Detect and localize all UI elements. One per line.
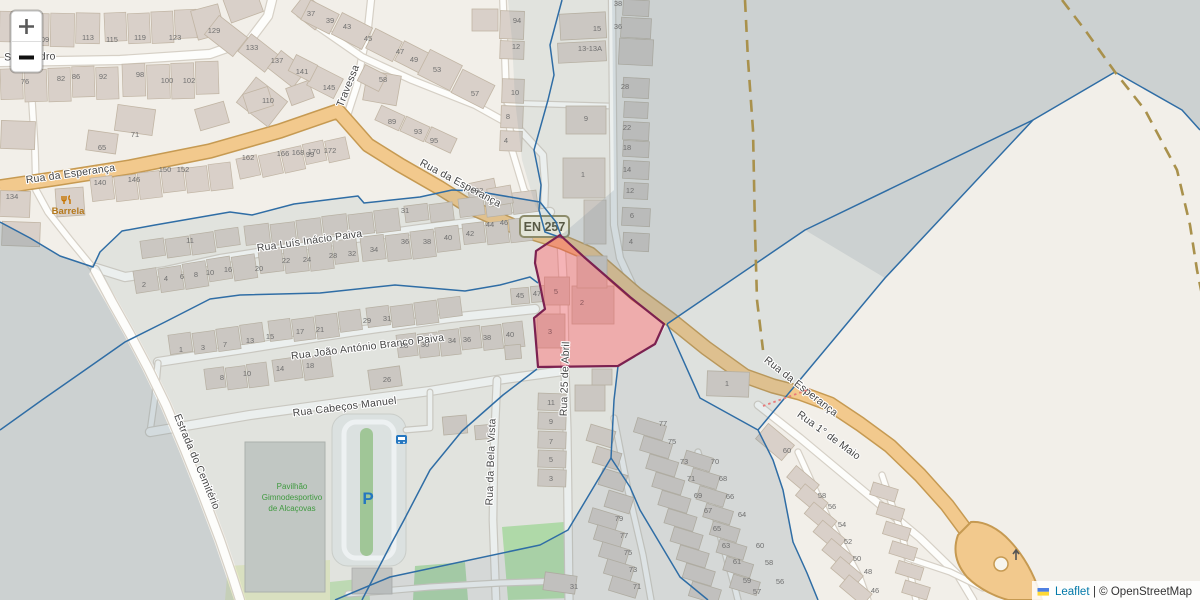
svg-text:4: 4 xyxy=(629,237,633,246)
svg-text:13: 13 xyxy=(246,336,254,345)
svg-text:3: 3 xyxy=(549,474,553,483)
svg-text:4: 4 xyxy=(504,136,508,145)
svg-text:28: 28 xyxy=(621,82,629,91)
svg-text:5: 5 xyxy=(554,287,558,296)
svg-text:63: 63 xyxy=(722,541,730,550)
svg-text:65: 65 xyxy=(98,143,106,152)
svg-text:4: 4 xyxy=(164,274,168,283)
svg-text:64: 64 xyxy=(738,510,746,519)
svg-text:9: 9 xyxy=(549,417,553,426)
svg-text:46: 46 xyxy=(871,586,879,595)
svg-text:11: 11 xyxy=(186,236,194,245)
svg-text:10: 10 xyxy=(511,88,519,97)
svg-text:Leaflet: Leaflet xyxy=(1055,586,1090,598)
svg-text:5: 5 xyxy=(549,455,553,464)
svg-text:60: 60 xyxy=(783,446,791,455)
svg-text:50: 50 xyxy=(853,554,861,563)
svg-text:3: 3 xyxy=(548,327,552,336)
svg-text:Pavilhão: Pavilhão xyxy=(277,482,308,491)
svg-text:18: 18 xyxy=(623,143,631,152)
svg-text:60: 60 xyxy=(756,541,764,550)
svg-text:34: 34 xyxy=(370,245,378,254)
svg-text:57: 57 xyxy=(471,89,479,98)
svg-text:45: 45 xyxy=(516,291,524,300)
svg-text:31: 31 xyxy=(401,206,409,215)
svg-text:56: 56 xyxy=(828,502,836,511)
svg-text:113: 113 xyxy=(82,33,94,42)
svg-text:65: 65 xyxy=(713,524,721,533)
svg-text:54: 54 xyxy=(838,520,846,529)
svg-text:13-13A: 13-13A xyxy=(578,44,602,53)
svg-text:36: 36 xyxy=(614,22,622,31)
svg-text:6: 6 xyxy=(630,211,634,220)
svg-text:98: 98 xyxy=(136,70,144,79)
svg-text:31: 31 xyxy=(383,314,391,323)
svg-text:99: 99 xyxy=(306,150,314,159)
svg-text:26: 26 xyxy=(383,375,391,384)
svg-text:92: 92 xyxy=(99,72,107,81)
svg-text:7: 7 xyxy=(223,340,227,349)
svg-text:58: 58 xyxy=(379,75,387,84)
svg-text:58: 58 xyxy=(765,558,773,567)
svg-text:38: 38 xyxy=(483,333,491,342)
svg-text:129: 129 xyxy=(208,26,221,35)
svg-text:34: 34 xyxy=(448,336,456,345)
svg-text:42: 42 xyxy=(466,229,474,238)
svg-text:2: 2 xyxy=(142,280,146,289)
svg-text:141: 141 xyxy=(296,67,309,76)
svg-text:172: 172 xyxy=(324,146,337,155)
svg-text:168: 168 xyxy=(292,148,305,157)
svg-text:20: 20 xyxy=(255,264,263,273)
svg-text:70: 70 xyxy=(711,457,719,466)
svg-text:15: 15 xyxy=(593,24,601,33)
svg-text:28: 28 xyxy=(400,341,408,350)
svg-text:32: 32 xyxy=(348,249,356,258)
svg-text:P: P xyxy=(362,489,373,508)
svg-text:8: 8 xyxy=(220,373,224,382)
svg-text:77: 77 xyxy=(620,531,628,540)
svg-text:95: 95 xyxy=(430,136,438,145)
svg-text:18: 18 xyxy=(306,361,314,370)
svg-text:30: 30 xyxy=(421,340,429,349)
svg-text:15: 15 xyxy=(266,332,274,341)
svg-text:40: 40 xyxy=(506,330,514,339)
svg-text:59: 59 xyxy=(743,576,751,585)
svg-text:76: 76 xyxy=(21,77,29,86)
svg-text:36: 36 xyxy=(401,237,409,246)
svg-text:77: 77 xyxy=(659,419,667,428)
svg-text:22: 22 xyxy=(282,256,290,265)
svg-text:40: 40 xyxy=(444,233,452,242)
svg-text:79: 79 xyxy=(615,514,623,523)
svg-text:68: 68 xyxy=(719,474,727,483)
svg-text:123: 123 xyxy=(169,33,182,42)
svg-text:93: 93 xyxy=(414,127,422,136)
svg-text:7: 7 xyxy=(549,437,553,446)
svg-text:1: 1 xyxy=(179,345,183,354)
svg-text:47: 47 xyxy=(533,289,541,298)
svg-text:75: 75 xyxy=(668,437,676,446)
svg-text:44: 44 xyxy=(486,220,494,229)
svg-text:11: 11 xyxy=(547,398,555,407)
svg-text:49: 49 xyxy=(410,55,418,64)
svg-text:9: 9 xyxy=(584,114,588,123)
svg-text:8: 8 xyxy=(194,270,198,279)
svg-text:115: 115 xyxy=(106,35,118,44)
svg-text:de Alcaçovas: de Alcaçovas xyxy=(268,504,315,513)
svg-text:47: 47 xyxy=(396,47,404,56)
svg-text:17: 17 xyxy=(296,327,304,336)
svg-text:73: 73 xyxy=(629,565,637,574)
svg-text:14: 14 xyxy=(623,165,631,174)
svg-text:86: 86 xyxy=(72,72,80,81)
svg-text:82: 82 xyxy=(57,74,65,83)
svg-text:16: 16 xyxy=(224,265,232,274)
svg-text:22: 22 xyxy=(623,123,631,132)
svg-text:94: 94 xyxy=(513,16,521,25)
svg-text:140: 140 xyxy=(94,178,107,187)
svg-text:2: 2 xyxy=(580,298,584,307)
svg-text:1: 1 xyxy=(725,379,729,388)
svg-text:| © OpenStreetMap: | © OpenStreetMap xyxy=(1093,586,1192,598)
svg-text:56: 56 xyxy=(776,577,784,586)
svg-text:58: 58 xyxy=(818,491,826,500)
svg-text:134: 134 xyxy=(6,192,19,201)
svg-text:66: 66 xyxy=(726,492,734,501)
svg-text:162: 162 xyxy=(242,153,255,162)
svg-text:28: 28 xyxy=(329,251,337,260)
svg-text:71: 71 xyxy=(131,130,139,139)
svg-text:89: 89 xyxy=(388,117,396,126)
svg-text:73: 73 xyxy=(680,457,688,466)
svg-text:69: 69 xyxy=(694,491,702,500)
svg-text:21: 21 xyxy=(316,325,324,334)
svg-text:14: 14 xyxy=(276,364,284,373)
svg-text:182: 182 xyxy=(471,186,484,195)
svg-text:43: 43 xyxy=(343,22,351,31)
svg-text:38: 38 xyxy=(423,237,431,246)
svg-text:Gimnodesportivo: Gimnodesportivo xyxy=(262,493,323,502)
svg-text:146: 146 xyxy=(128,175,141,184)
svg-text:67: 67 xyxy=(704,506,712,515)
svg-text:150: 150 xyxy=(159,165,172,174)
svg-text:38: 38 xyxy=(614,0,622,8)
svg-text:57: 57 xyxy=(753,587,761,596)
svg-text:Barrela: Barrela xyxy=(52,206,85,217)
svg-text:31: 31 xyxy=(570,582,578,591)
svg-text:102: 102 xyxy=(183,76,196,85)
svg-text:61: 61 xyxy=(733,557,741,566)
svg-text:45: 45 xyxy=(364,34,372,43)
svg-text:12: 12 xyxy=(512,42,520,51)
svg-text:75: 75 xyxy=(624,548,632,557)
svg-text:37: 37 xyxy=(307,9,315,18)
svg-text:10: 10 xyxy=(206,268,214,277)
svg-text:166: 166 xyxy=(277,149,290,158)
svg-text:29: 29 xyxy=(363,316,371,325)
svg-text:48: 48 xyxy=(864,567,872,576)
svg-text:10: 10 xyxy=(243,369,251,378)
svg-text:52: 52 xyxy=(844,537,852,546)
svg-text:3: 3 xyxy=(201,343,205,352)
svg-text:119: 119 xyxy=(134,33,146,42)
svg-text:110: 110 xyxy=(262,96,274,105)
svg-text:145: 145 xyxy=(323,83,336,92)
svg-text:133: 133 xyxy=(246,43,259,52)
svg-text:137: 137 xyxy=(271,56,284,65)
svg-text:100: 100 xyxy=(161,76,174,85)
svg-text:8: 8 xyxy=(506,112,510,121)
svg-text:46: 46 xyxy=(500,218,508,227)
svg-text:152: 152 xyxy=(177,165,190,174)
svg-text:53: 53 xyxy=(433,65,441,74)
svg-text:71: 71 xyxy=(687,474,695,483)
svg-text:71: 71 xyxy=(633,582,641,591)
svg-text:6: 6 xyxy=(180,272,184,281)
svg-text:12: 12 xyxy=(626,186,634,195)
svg-text:1: 1 xyxy=(581,170,585,179)
svg-text:36: 36 xyxy=(463,335,471,344)
svg-text:39: 39 xyxy=(326,16,334,25)
svg-text:24: 24 xyxy=(303,255,311,264)
